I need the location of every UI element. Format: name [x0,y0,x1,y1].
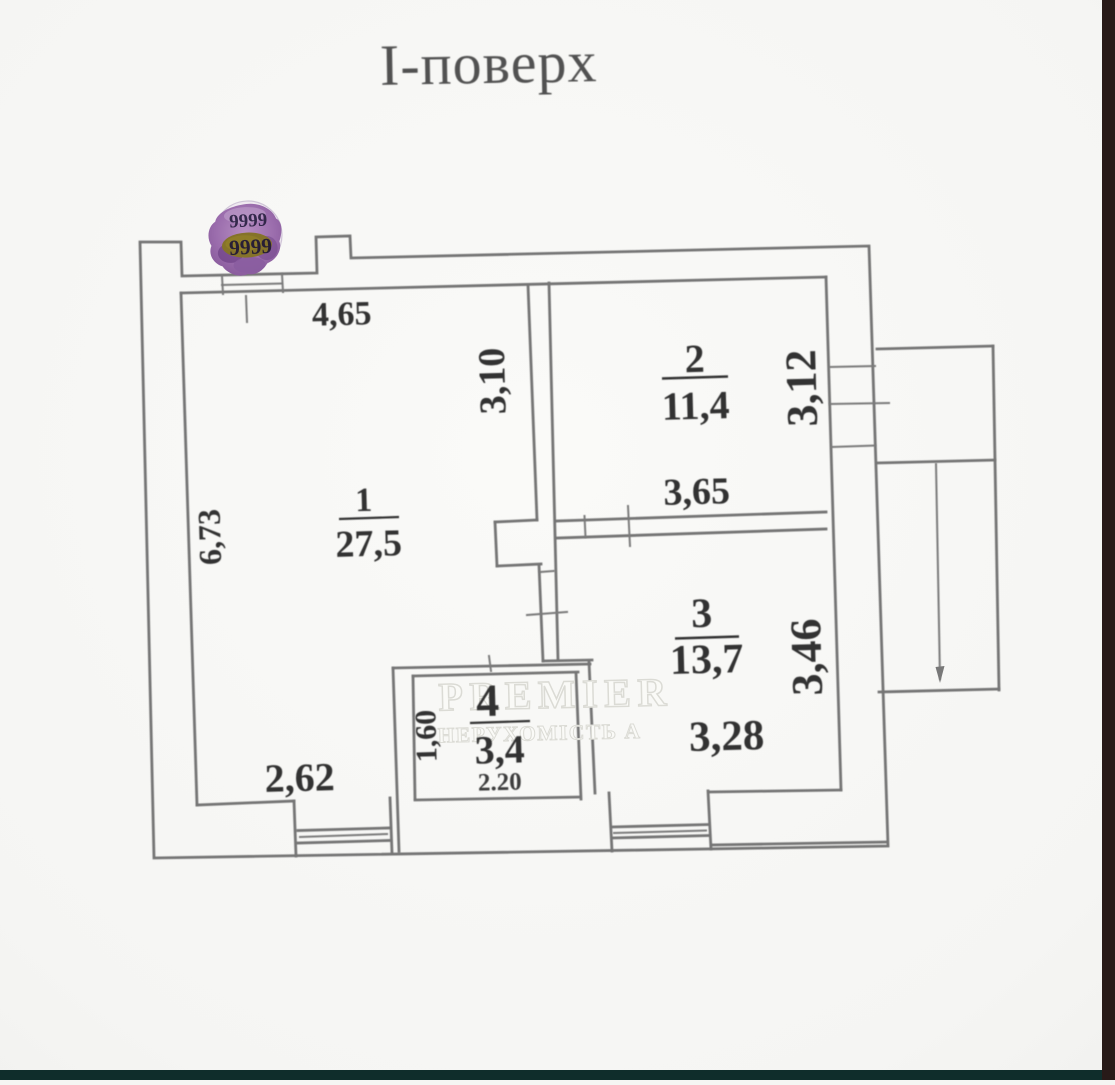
svg-text:3,28: 3,28 [688,712,764,761]
svg-text:2: 2 [684,336,705,382]
svg-text:9999: 9999 [229,209,268,232]
svg-text:6,73: 6,73 [191,509,228,566]
svg-text:3,65: 3,65 [663,470,731,514]
svg-text:3,10: 3,10 [471,347,515,415]
svg-text:PREMIER: PREMIER [438,669,673,719]
svg-text:2.20: 2.20 [478,768,522,796]
svg-text:4,65: 4,65 [312,295,372,334]
svg-text:3,46: 3,46 [781,618,832,696]
svg-text:НЕРУХОМІСТЬ А: НЕРУХОМІСТЬ А [437,719,641,748]
svg-text:1,60: 1,60 [409,709,443,762]
svg-text:І-поверх: І-поверх [379,29,598,98]
svg-text:3: 3 [691,591,713,638]
svg-text:9999: 9999 [228,234,272,260]
svg-text:13,7: 13,7 [669,636,744,684]
svg-text:11,4: 11,4 [661,382,730,429]
svg-text:3,4: 3,4 [474,726,525,772]
svg-text:1: 1 [355,482,373,519]
svg-text:27,5: 27,5 [335,522,403,566]
svg-text:2,62: 2,62 [264,754,335,801]
svg-text:4: 4 [475,675,499,727]
svg-text:3,12: 3,12 [776,349,827,427]
